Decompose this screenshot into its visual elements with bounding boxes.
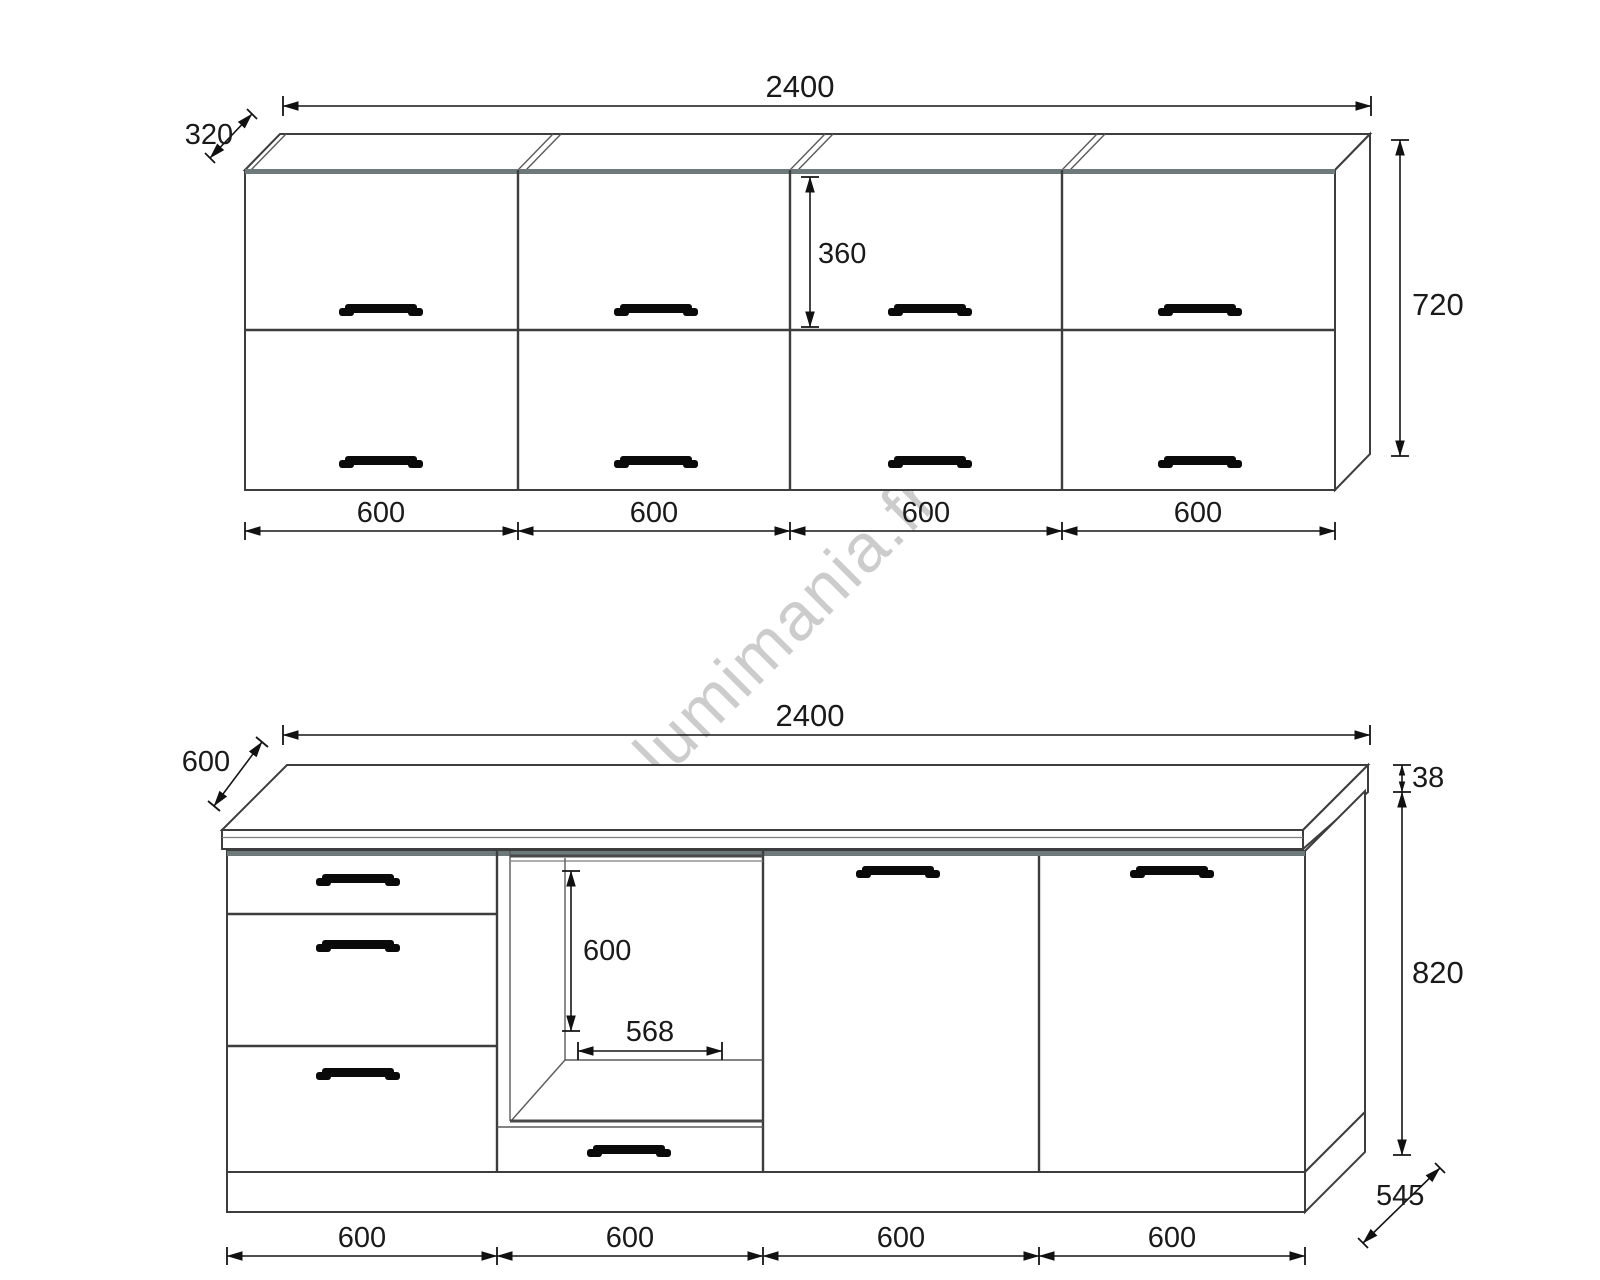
base-cabinet-drawing: 600 568 2400 600 [182,698,1464,1265]
base-cabinet-side-face [1305,791,1365,1172]
wall-width-dimension: 2400 [283,69,1371,116]
countertop-thickness-label: 38 [1412,762,1444,794]
wall-height-label: 720 [1412,287,1464,322]
base-side-depth-label: 545 [1376,1180,1424,1212]
base-section-label: 600 [1148,1222,1196,1254]
countertop-top-face [222,765,1368,830]
wall-depth-label: 320 [185,119,233,151]
plinth-front [227,1172,1305,1212]
base-height-label: 820 [1412,955,1464,990]
base-side-depth-dimension: 545 [1358,1163,1445,1248]
wall-section-label: 600 [630,497,678,529]
base-depth-label: 600 [182,746,230,778]
base-height-dimension: 820 [1393,792,1464,1155]
drawing-canvas: lumimania.fr [0,0,1600,1280]
niche-height-label: 600 [583,935,631,967]
wall-section-label: 600 [357,497,405,529]
wall-height-dimension: 720 [1391,140,1464,456]
wall-section-label: 600 [902,497,950,529]
base-section-label: 600 [338,1222,386,1254]
niche-width-label: 568 [626,1016,674,1048]
wall-width-label: 2400 [766,69,835,104]
cabinet-technical-drawing: lumimania.fr [0,0,1600,1280]
wall-section-dimensions: 600 600 600 600 [245,497,1335,540]
countertop-front-edge [222,830,1303,849]
base-width-label: 2400 [776,698,845,733]
base-section-label: 600 [877,1222,925,1254]
wall-depth-dimension: 320 [185,109,257,163]
wall-section-label: 600 [1174,497,1222,529]
wall-door-height-label: 360 [818,238,866,270]
base-width-dimension: 2400 [283,698,1370,745]
base-section-label: 600 [606,1222,654,1254]
base-section-dimensions: 600 600 600 600 [227,1222,1305,1265]
base-cabinet-front-face [227,851,1305,1172]
countertop-thickness-dimension: 38 [1393,762,1444,794]
wall-cabinet-side-face [1335,134,1370,490]
wall-cabinet-drawing: 2400 320 360 720 [185,69,1464,540]
